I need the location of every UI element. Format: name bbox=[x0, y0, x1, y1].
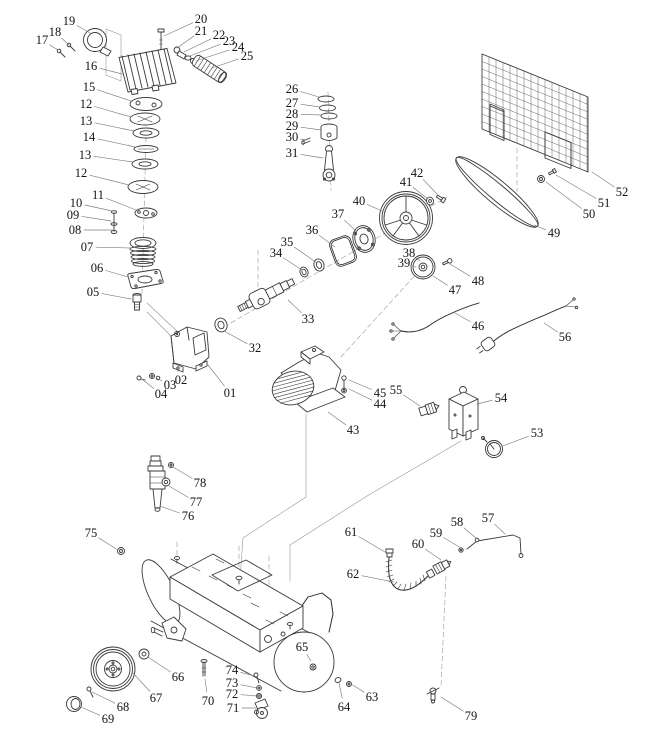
piston-assembly bbox=[302, 96, 337, 181]
part-label-53: 53 bbox=[531, 426, 544, 440]
part-label-42: 42 bbox=[411, 166, 424, 180]
nut-icon bbox=[169, 463, 174, 468]
leader-line-10 bbox=[85, 205, 112, 211]
outlet-pipe-icon bbox=[467, 535, 523, 558]
part-label-73: 73 bbox=[226, 676, 239, 690]
part-label-49: 49 bbox=[548, 226, 561, 240]
part-label-39: 39 bbox=[398, 256, 411, 270]
part-label-62: 62 bbox=[347, 567, 360, 581]
part-label-17: 17 bbox=[36, 33, 49, 47]
leader-line-44 bbox=[349, 389, 372, 400]
crankshaft-icon bbox=[235, 274, 297, 317]
part-label-40: 40 bbox=[353, 194, 366, 208]
part-label-08: 08 bbox=[69, 223, 82, 237]
fitting-icon bbox=[162, 478, 170, 486]
seal-ring-icon bbox=[213, 316, 229, 333]
leader-line-37 bbox=[345, 220, 358, 232]
leader-line-25 bbox=[212, 59, 239, 68]
part-label-36: 36 bbox=[306, 223, 319, 237]
part-label-65: 65 bbox=[296, 640, 309, 654]
leader-line-11 bbox=[106, 198, 136, 210]
regulator-assembly bbox=[118, 456, 174, 555]
crankcase bbox=[137, 327, 209, 380]
part-label-47: 47 bbox=[449, 283, 462, 297]
muffler-icon bbox=[191, 54, 229, 84]
part-label-67: 67 bbox=[150, 691, 163, 705]
part-label-12: 12 bbox=[80, 97, 93, 111]
part-label-10: 10 bbox=[70, 196, 83, 210]
part-label-79: 79 bbox=[465, 709, 478, 723]
leader-line-63 bbox=[351, 684, 364, 692]
leader-line-46 bbox=[455, 313, 470, 322]
part-label-63: 63 bbox=[366, 690, 379, 704]
tank-foot-icon bbox=[151, 617, 186, 641]
leader-line-40 bbox=[367, 205, 382, 211]
leader-line-09 bbox=[82, 216, 111, 221]
leader-line-51 bbox=[556, 175, 596, 199]
part-label-11: 11 bbox=[92, 188, 104, 202]
part-label-01: 01 bbox=[224, 386, 237, 400]
check-valve-icon bbox=[418, 401, 440, 417]
part-label-76: 76 bbox=[182, 509, 195, 523]
part-label-58: 58 bbox=[451, 515, 464, 529]
leader-line-05 bbox=[102, 294, 131, 299]
wheel-assembly bbox=[67, 647, 150, 712]
leader-line-48 bbox=[450, 264, 470, 276]
part-label-25: 25 bbox=[241, 49, 254, 63]
part-label-18: 18 bbox=[49, 25, 62, 39]
leader-line-26 bbox=[301, 92, 319, 97]
crankshaft-assembly bbox=[213, 223, 378, 334]
leader-line-17 bbox=[50, 45, 58, 50]
leader-line-22 bbox=[184, 39, 211, 52]
pressure-gauge-icon bbox=[482, 437, 503, 458]
leader-line-06 bbox=[106, 271, 128, 278]
part-label-21: 21 bbox=[195, 24, 208, 38]
part-label-66: 66 bbox=[172, 670, 185, 684]
braided-hose-icon bbox=[386, 549, 428, 590]
fitting-icon bbox=[459, 548, 463, 552]
part-label-26: 26 bbox=[286, 82, 299, 96]
leader-line-33 bbox=[288, 300, 302, 313]
pressure-control-group bbox=[418, 387, 502, 458]
leader-line-64 bbox=[339, 683, 342, 698]
piston-icon bbox=[321, 127, 337, 141]
part-label-64: 64 bbox=[338, 700, 351, 714]
leader-line-50 bbox=[546, 182, 582, 209]
leader-line-56 bbox=[544, 323, 558, 332]
leader-line-13 bbox=[95, 123, 134, 131]
bolt-icon bbox=[436, 194, 446, 203]
leader-line-68 bbox=[92, 692, 115, 703]
leader-line-72 bbox=[241, 695, 257, 696]
leader-line-36 bbox=[319, 235, 335, 247]
part-label-32: 32 bbox=[249, 341, 262, 355]
washer-icon bbox=[150, 374, 155, 379]
part-label-02: 02 bbox=[175, 373, 188, 387]
part-label-56: 56 bbox=[559, 330, 572, 344]
tank-platform-icon bbox=[170, 554, 303, 652]
part-label-78: 78 bbox=[194, 476, 207, 490]
hose-group bbox=[386, 535, 523, 703]
leader-line-29 bbox=[301, 127, 321, 130]
wire-icon bbox=[390, 303, 479, 340]
diagram-svg: 0102030405060708091011121314131215161718… bbox=[0, 0, 649, 755]
bolt-icon bbox=[137, 376, 141, 380]
leader-line-04 bbox=[143, 380, 154, 389]
leader-line-78 bbox=[173, 467, 192, 478]
leader-line-28 bbox=[301, 114, 321, 115]
part-label-69: 69 bbox=[102, 712, 115, 726]
part-label-13: 13 bbox=[80, 114, 93, 128]
leader-line-12 bbox=[95, 107, 131, 118]
electric-motor bbox=[268, 346, 346, 412]
leader-line-12 bbox=[90, 175, 129, 185]
belt-guard bbox=[482, 54, 588, 183]
part-label-13: 13 bbox=[79, 148, 92, 162]
part-label-46: 46 bbox=[472, 319, 485, 333]
plug-icon bbox=[475, 336, 496, 355]
part-label-59: 59 bbox=[430, 526, 443, 540]
part-label-06: 06 bbox=[91, 261, 104, 275]
regulator-icon bbox=[148, 456, 170, 511]
piston-ring-icon bbox=[320, 105, 336, 111]
leader-line-59 bbox=[444, 538, 461, 548]
leader-line-07 bbox=[96, 247, 131, 248]
pressure-switch-icon bbox=[449, 387, 478, 441]
leader-line-43 bbox=[328, 412, 346, 425]
part-label-77: 77 bbox=[190, 495, 203, 509]
leader-line-34 bbox=[284, 258, 303, 270]
cylinder-head bbox=[119, 49, 176, 95]
part-label-71: 71 bbox=[227, 701, 240, 715]
leader-line-53 bbox=[503, 436, 529, 446]
leader-line-52 bbox=[592, 172, 615, 187]
cylinder-and-base-gasket bbox=[128, 238, 164, 311]
flywheel bbox=[380, 192, 446, 245]
leader-line-54 bbox=[477, 400, 492, 404]
part-label-61: 61 bbox=[345, 525, 358, 539]
part-label-07: 07 bbox=[81, 240, 94, 254]
leader-line-42 bbox=[423, 180, 437, 195]
part-label-51: 51 bbox=[598, 196, 611, 210]
leader-line-67 bbox=[133, 673, 150, 691]
part-label-37: 37 bbox=[332, 207, 345, 221]
leader-line-55 bbox=[404, 395, 421, 406]
leader-line-20 bbox=[164, 23, 193, 36]
leader-line-69 bbox=[81, 707, 100, 715]
leader-line-18 bbox=[62, 38, 70, 46]
part-label-70: 70 bbox=[202, 694, 215, 708]
part-label-55: 55 bbox=[390, 383, 403, 397]
piston-ring-icon bbox=[318, 96, 334, 102]
v-belt bbox=[449, 149, 545, 235]
leader-line-14 bbox=[98, 139, 135, 147]
leader-line-57 bbox=[495, 524, 505, 534]
leader-line-32 bbox=[224, 331, 247, 344]
leader-line-13 bbox=[94, 156, 133, 162]
exploded-parts-diagram: 0102030405060708091011121314131215161718… bbox=[0, 0, 649, 755]
leader-line-16 bbox=[100, 68, 122, 74]
power-cord-icon bbox=[475, 298, 578, 356]
bolt-icon bbox=[201, 660, 207, 663]
part-label-52: 52 bbox=[616, 185, 629, 199]
caster-icon bbox=[255, 699, 269, 719]
part-label-09: 09 bbox=[67, 208, 80, 222]
part-label-43: 43 bbox=[347, 423, 360, 437]
leader-line-70 bbox=[205, 679, 207, 692]
part-label-15: 15 bbox=[83, 80, 96, 94]
part-label-04: 04 bbox=[155, 387, 168, 401]
air-tank-group bbox=[134, 554, 351, 692]
part-label-19: 19 bbox=[63, 14, 76, 28]
part-label-54: 54 bbox=[495, 391, 508, 405]
part-label-60: 60 bbox=[412, 537, 425, 551]
part-label-33: 33 bbox=[302, 312, 315, 326]
base-gasket-icon bbox=[128, 269, 164, 288]
leader-line-77 bbox=[169, 486, 188, 497]
drain-cock-icon bbox=[427, 688, 439, 703]
nut-icon bbox=[118, 548, 125, 555]
guard-screw-icon bbox=[538, 176, 545, 183]
leader-line-75 bbox=[99, 538, 118, 550]
part-label-45: 45 bbox=[374, 386, 387, 400]
part-label-57: 57 bbox=[482, 511, 495, 525]
bearing-icon bbox=[312, 257, 326, 272]
leader-line-31 bbox=[301, 154, 323, 158]
leader-line-66 bbox=[148, 657, 171, 672]
leader-line-15 bbox=[98, 90, 132, 101]
part-label-31: 31 bbox=[286, 146, 299, 160]
leader-line-60 bbox=[425, 549, 441, 560]
part-label-75: 75 bbox=[85, 526, 98, 540]
leader-line-79 bbox=[441, 697, 463, 711]
leader-line-47 bbox=[433, 276, 447, 285]
washer-icon bbox=[139, 649, 149, 659]
part-label-68: 68 bbox=[117, 700, 130, 714]
air-filter-assembly bbox=[57, 29, 121, 82]
leader-line-76 bbox=[160, 506, 180, 513]
leader-line-45 bbox=[349, 380, 372, 390]
bolt-icon bbox=[548, 169, 556, 176]
part-label-74: 74 bbox=[226, 663, 239, 677]
valve-plate-stack bbox=[128, 98, 162, 219]
leader-line-01 bbox=[208, 365, 224, 386]
part-label-30: 30 bbox=[286, 130, 299, 144]
bolt-icon bbox=[87, 687, 91, 691]
check-valve-icon bbox=[433, 558, 453, 574]
leader-line-19 bbox=[77, 26, 90, 34]
part-label-05: 05 bbox=[87, 285, 100, 299]
part-label-12: 12 bbox=[75, 166, 88, 180]
leader-line-35 bbox=[294, 247, 317, 263]
leader-line-58 bbox=[464, 528, 477, 539]
part-label-35: 35 bbox=[281, 235, 294, 249]
leader-line-61 bbox=[359, 537, 385, 552]
leader-line-27 bbox=[301, 104, 320, 107]
leader-line-21 bbox=[177, 36, 194, 48]
part-label-16: 16 bbox=[85, 59, 98, 73]
oil-seal-icon bbox=[299, 266, 310, 278]
leader-line-73 bbox=[241, 685, 257, 688]
part-label-14: 14 bbox=[83, 130, 96, 144]
part-label-48: 48 bbox=[472, 274, 485, 288]
bolt-icon bbox=[342, 376, 346, 380]
part-label-50: 50 bbox=[583, 207, 596, 221]
leader-line-30 bbox=[301, 139, 305, 140]
bolt-icon bbox=[254, 673, 258, 677]
